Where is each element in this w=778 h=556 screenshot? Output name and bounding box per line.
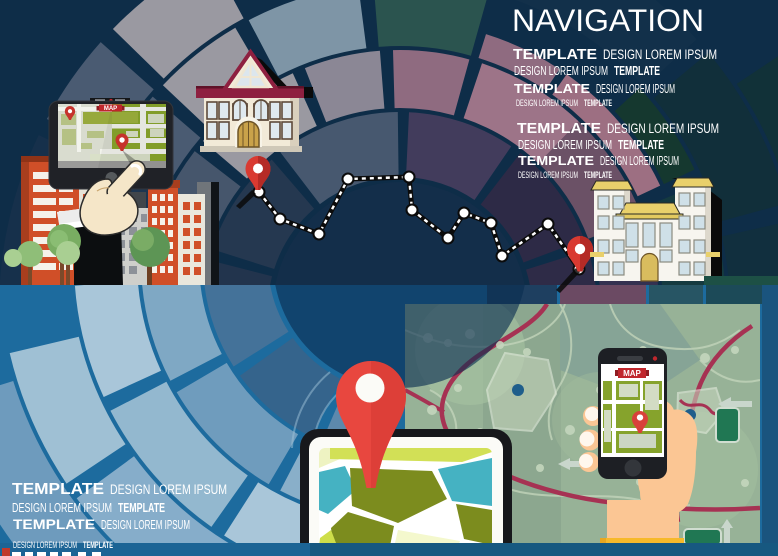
svg-text:DESIGN LOREM IPSUM: DESIGN LOREM IPSUM — [110, 482, 227, 497]
svg-text:TEMPLATE: TEMPLATE — [513, 47, 597, 63]
svg-text:DESIGN LOREM IPSUM: DESIGN LOREM IPSUM — [101, 518, 190, 532]
svg-text:TEMPLATE: TEMPLATE — [517, 121, 601, 137]
svg-text:DESIGN LOREM IPSUM: DESIGN LOREM IPSUM — [596, 82, 675, 96]
svg-text:DESIGN LOREM IPSUM: DESIGN LOREM IPSUM — [518, 138, 612, 152]
svg-text:DESIGN LOREM IPSUM: DESIGN LOREM IPSUM — [514, 64, 608, 78]
svg-text:TEMPLATE: TEMPLATE — [518, 153, 594, 168]
svg-text:MAP: MAP — [623, 369, 641, 378]
svg-text:TEMPLATE: TEMPLATE — [584, 98, 612, 109]
svg-text:TEMPLATE: TEMPLATE — [514, 81, 590, 96]
svg-text:DESIGN LOREM IPSUM: DESIGN LOREM IPSUM — [518, 170, 578, 181]
svg-text:DESIGN LOREM IPSUM: DESIGN LOREM IPSUM — [12, 501, 112, 515]
svg-text:DESIGN LOREM IPSUM: DESIGN LOREM IPSUM — [600, 154, 679, 168]
svg-text:TEMPLATE: TEMPLATE — [13, 516, 95, 532]
svg-text:DESIGN LOREM IPSUM: DESIGN LOREM IPSUM — [607, 121, 719, 136]
svg-text:TEMPLATE: TEMPLATE — [83, 540, 113, 551]
svg-text:DESIGN LOREM IPSUM: DESIGN LOREM IPSUM — [13, 540, 77, 551]
svg-text:NAVIGATION: NAVIGATION — [512, 2, 704, 38]
svg-text:TEMPLATE: TEMPLATE — [614, 64, 660, 78]
svg-text:TEMPLATE: TEMPLATE — [584, 170, 612, 181]
svg-text:MAP: MAP — [104, 106, 117, 112]
svg-text:DESIGN LOREM IPSUM: DESIGN LOREM IPSUM — [603, 47, 717, 62]
svg-text:TEMPLATE: TEMPLATE — [12, 481, 104, 498]
svg-text:TEMPLATE: TEMPLATE — [118, 501, 165, 515]
svg-text:TEMPLATE: TEMPLATE — [618, 138, 664, 152]
svg-text:DESIGN LOREM IPSUM: DESIGN LOREM IPSUM — [516, 98, 578, 109]
